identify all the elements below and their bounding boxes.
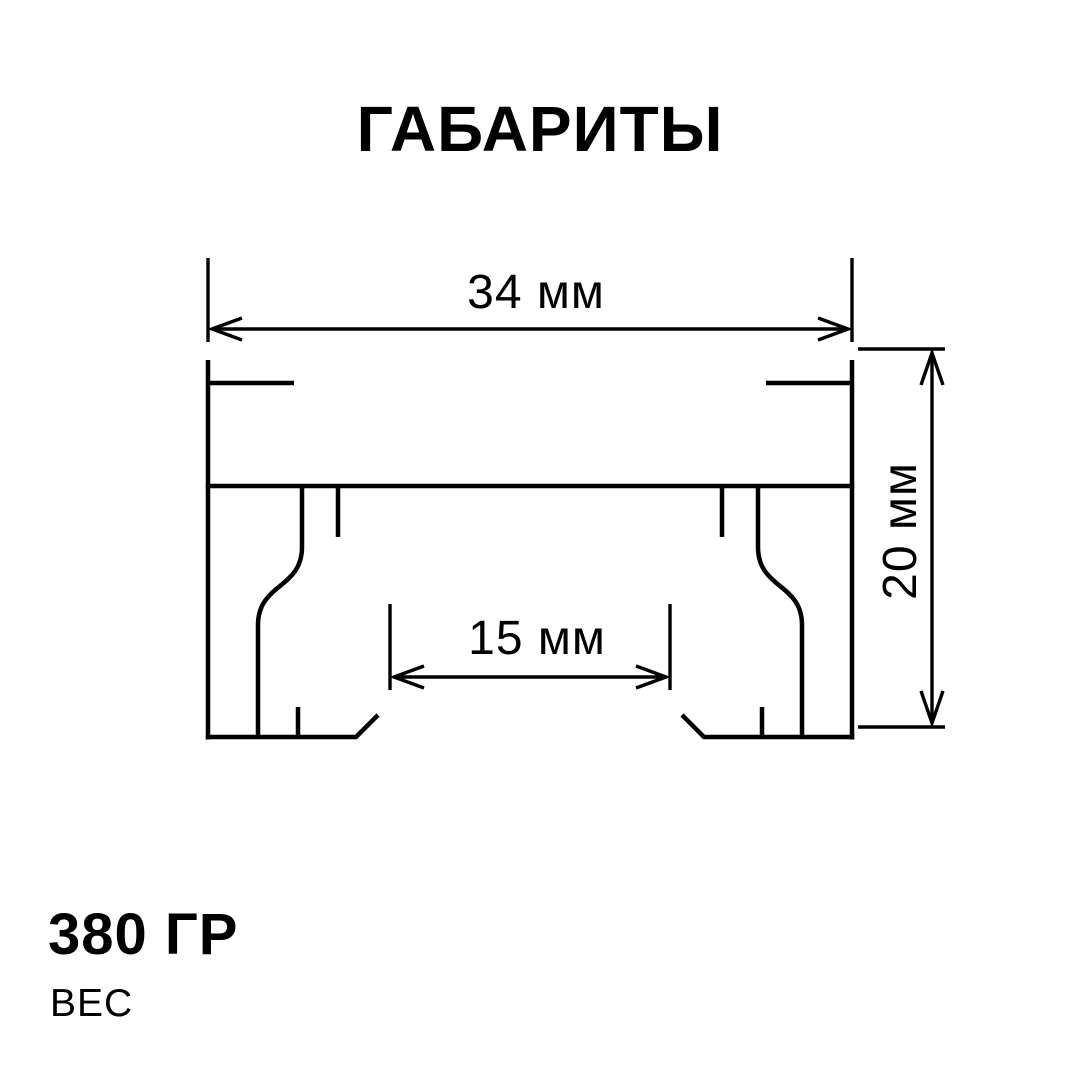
weight-label: ВЕС: [50, 983, 133, 1026]
profile-right-leg: [758, 486, 802, 739]
width-dimension-label: 34 мм: [467, 269, 605, 317]
profile-bottom-right: [682, 715, 854, 737]
profile-left-leg: [258, 486, 302, 739]
inner-width-dimension-label: 15 мм: [468, 615, 606, 663]
dimensions-card: ГАБАРИТЫ: [0, 0, 1080, 1080]
weight-value: 380 ГР: [48, 903, 238, 967]
height-dimension-label: 20 мм: [877, 462, 925, 600]
profile-bottom-left: [206, 715, 378, 737]
profile-outline: [206, 360, 854, 740]
